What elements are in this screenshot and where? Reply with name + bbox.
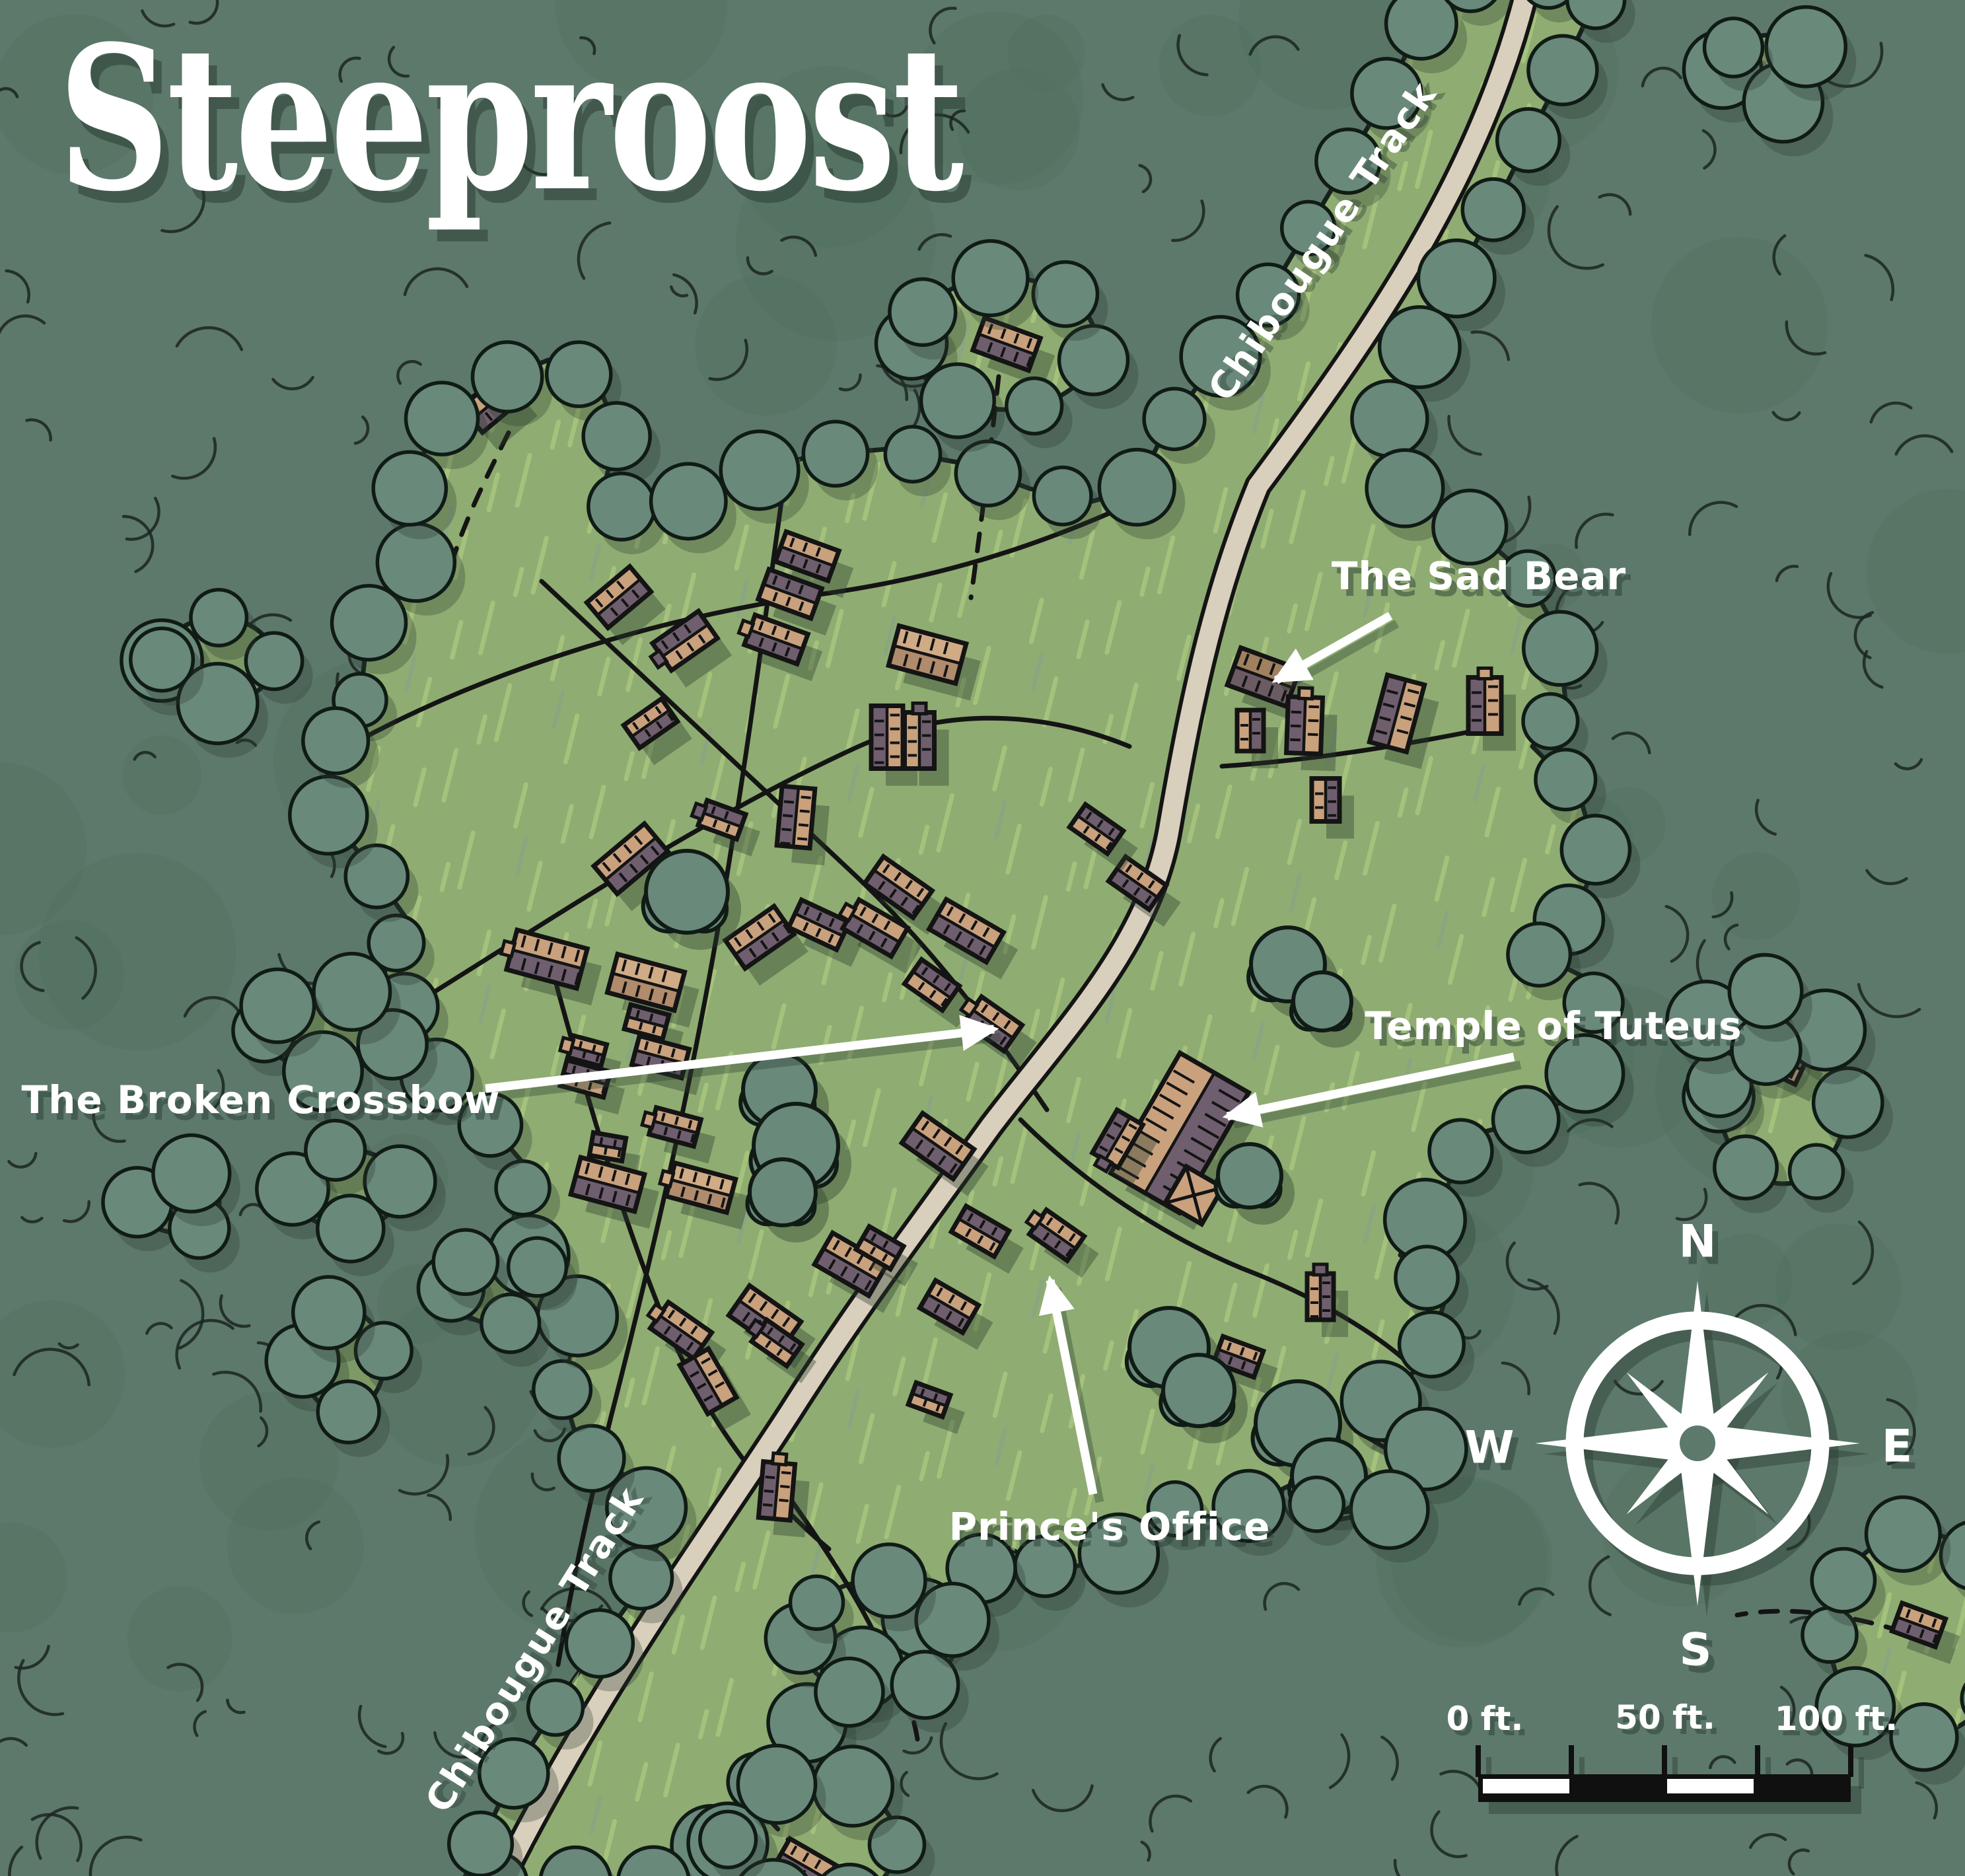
compass-north-label: N [1679,1216,1717,1268]
label-the-broken-crossbow: The Broken Crossbow [22,1077,501,1122]
compass-east-label: E [1882,1421,1912,1473]
label-the-sad-bear: The Sad Bear [1332,554,1626,598]
village-map-canvas: Steeproost The Sad Bear Temple of Tuteus… [0,0,1965,1876]
scale-label-100ft: 100 ft. [1775,1700,1898,1738]
map-drawing [0,0,1965,1876]
compass-west-label: W [1464,1422,1514,1474]
map-title: Steeproost [58,12,961,226]
label-temple-of-tuteus: Temple of Tuteus [1365,1003,1742,1048]
scale-label-0ft: 0 ft. [1447,1700,1524,1738]
scale-label-50ft: 50 ft. [1615,1698,1715,1737]
compass-south-label: S [1680,1624,1712,1677]
label-princes-office: Prince's Office [949,1504,1271,1549]
